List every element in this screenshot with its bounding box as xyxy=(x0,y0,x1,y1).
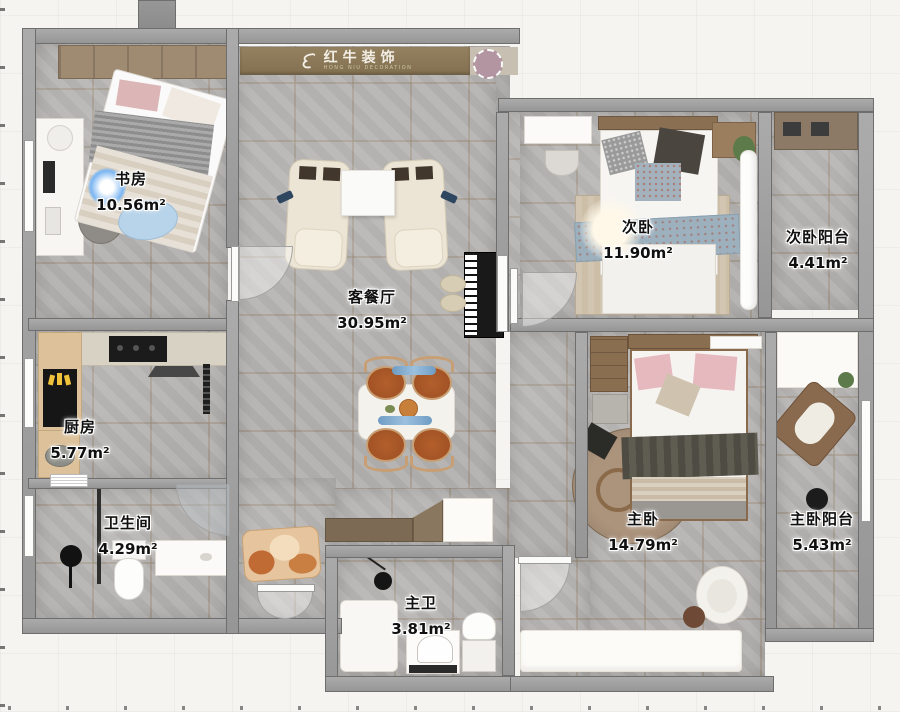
balcony-pot xyxy=(806,488,828,510)
room-label-second-balcony: 次卧阳台 4.41m² xyxy=(786,226,850,272)
pillow-pink xyxy=(693,353,738,391)
wall-bottom-left-outer xyxy=(22,618,238,634)
wall-master-bottom-outer xyxy=(510,676,774,692)
room-name-living-dining: 客餐厅 xyxy=(337,286,407,307)
room-name-master-bath: 主卫 xyxy=(391,592,450,613)
hall-cabinet-white xyxy=(443,498,493,542)
room-name-second-bedroom: 次卧 xyxy=(603,216,673,237)
second-bedroom-desk xyxy=(524,116,592,144)
radiator xyxy=(203,364,210,414)
hongniu-logo-icon xyxy=(298,51,318,71)
entry-door-leaf xyxy=(257,584,315,592)
window-living-hall xyxy=(497,255,508,332)
wall-master-left xyxy=(575,332,588,558)
recliner-cushion xyxy=(299,166,317,180)
brand-name: 红牛装饰 xyxy=(324,52,413,65)
curtain xyxy=(740,150,757,310)
plant-stand xyxy=(60,545,82,567)
master-dresser xyxy=(592,394,628,424)
chair-glass-back xyxy=(378,416,432,425)
faucet xyxy=(200,553,212,561)
floor-corridor xyxy=(510,332,575,558)
master-bed xyxy=(630,349,748,521)
headboard-box xyxy=(710,336,762,349)
burner xyxy=(117,345,123,351)
second-bedroom-chair xyxy=(545,150,579,176)
room-label-master-balcony: 主卧阳台 5.43m² xyxy=(790,508,854,554)
sink-basin xyxy=(417,635,453,663)
master-curtain xyxy=(520,630,742,672)
bed-pillow-pink xyxy=(116,79,162,111)
chair-rattan-back xyxy=(410,456,454,472)
vanity-shelf xyxy=(409,665,457,673)
room-area-master-balcony: 5.43m² xyxy=(790,536,854,554)
master-shower xyxy=(340,600,398,672)
recliner-cushion xyxy=(323,167,341,181)
pouf xyxy=(440,275,466,293)
study-desk xyxy=(36,118,84,256)
floorplan-page: 红牛装饰 HONG NIU DECORATION xyxy=(0,0,900,712)
cabinet-basin xyxy=(811,122,829,136)
cooktop xyxy=(109,336,167,362)
chair-rattan-back xyxy=(364,456,408,472)
piano-keys xyxy=(465,255,477,335)
flame-icon xyxy=(48,375,55,386)
brand-text-block: 红牛装饰 HONG NIU DECORATION xyxy=(324,52,413,71)
flame-icon xyxy=(57,373,62,385)
room-area-master-bath: 3.81m² xyxy=(391,620,450,638)
master-toilet-bowl xyxy=(462,612,496,640)
desk-keyboard xyxy=(45,207,61,235)
bottom-dimension-ticks xyxy=(8,706,898,710)
second-bedroom-door-leaf xyxy=(510,268,518,324)
room-label-second-bedroom: 次卧 11.90m² xyxy=(603,216,673,262)
wall-study-kitchen xyxy=(28,318,230,331)
room-area-living-dining: 30.95m² xyxy=(337,314,407,332)
room-area-second-bedroom: 11.90m² xyxy=(603,244,673,262)
room-area-study: 10.56m² xyxy=(96,196,166,214)
dining-greens xyxy=(385,405,395,413)
window-kitchen xyxy=(24,358,34,428)
burner xyxy=(133,345,139,351)
window-master-balcony xyxy=(861,400,871,522)
wall-top-outer xyxy=(22,28,520,44)
room-label-master-bedroom: 主卧 14.79m² xyxy=(608,508,678,554)
balcony-plant xyxy=(838,372,854,388)
master-bedroom-door-leaf xyxy=(518,556,572,564)
wall-right-outer xyxy=(858,112,874,642)
blanket-olive xyxy=(621,433,758,480)
master-wardrobe xyxy=(590,336,628,392)
kitchen-counter-top xyxy=(80,332,228,366)
wall-master-balcony-bottom xyxy=(765,628,874,642)
lounge-cushion xyxy=(789,397,840,450)
recliner-footrest xyxy=(394,228,444,268)
range-hood xyxy=(148,366,200,377)
plant-stand-pole xyxy=(69,566,72,588)
burner xyxy=(149,345,155,351)
wall-mid-horizontal xyxy=(510,318,874,332)
bathroom-vanity xyxy=(155,540,228,576)
second-bed-headboard xyxy=(598,116,718,130)
armchair-seat xyxy=(707,579,737,613)
wall-master-bath-right xyxy=(502,545,515,676)
pouf xyxy=(440,294,466,312)
room-label-living-dining: 客餐厅 30.95m² xyxy=(337,286,407,332)
hanging-planter xyxy=(374,572,392,590)
room-name-master-bedroom: 主卧 xyxy=(608,508,678,529)
recliner-cushion xyxy=(415,166,433,180)
room-area-kitchen: 5.77m² xyxy=(50,444,109,462)
recliner-footrest xyxy=(293,228,343,268)
window-study xyxy=(24,140,34,232)
room-label-master-bath: 主卫 3.81m² xyxy=(391,592,450,638)
wall-master-bath-bottom xyxy=(325,676,515,692)
window-bathroom xyxy=(24,495,34,557)
room-area-second-balcony: 4.41m² xyxy=(786,254,850,272)
shoe-cabinet xyxy=(325,518,413,542)
toilet xyxy=(114,558,144,600)
master-toilet-base xyxy=(462,640,496,672)
brand-banner: 红牛装饰 HONG NIU DECORATION xyxy=(240,47,470,75)
room-label-bathroom: 卫生间 4.29m² xyxy=(98,512,157,558)
room-name-master-balcony: 主卧阳台 xyxy=(790,508,854,529)
coffee-table xyxy=(341,170,395,216)
study-door-leaf xyxy=(231,246,239,302)
wall-master-balcony-div xyxy=(765,332,777,642)
pillow-speckled xyxy=(635,163,681,201)
entry-doormat xyxy=(241,525,321,582)
blanket-beige xyxy=(632,477,746,503)
chair-glass-back xyxy=(392,366,436,375)
cabinet-basin xyxy=(783,122,801,136)
desk-monitor xyxy=(43,161,55,193)
wall-study-living-upper xyxy=(226,28,239,248)
room-name-bathroom: 卫生间 xyxy=(98,512,157,533)
desk-speaker xyxy=(47,125,73,151)
ceiling-light-symbol xyxy=(473,49,503,79)
pouf-brown xyxy=(683,606,705,628)
flame-icon xyxy=(64,375,71,386)
room-name-kitchen: 厨房 xyxy=(50,416,109,437)
brand-subtitle: HONG NIU DECORATION xyxy=(324,65,413,71)
room-name-study: 书房 xyxy=(96,168,166,189)
room-label-kitchen: 厨房 5.77m² xyxy=(50,416,109,462)
wall-bedrooms-top xyxy=(498,98,874,112)
wall-master-bath-top xyxy=(325,545,515,558)
wall-study-living-lower xyxy=(226,300,239,634)
towel-radiator xyxy=(50,474,88,487)
room-area-master-bedroom: 14.79m² xyxy=(608,536,678,554)
room-name-second-balcony: 次卧阳台 xyxy=(786,226,850,247)
study-wardrobe xyxy=(58,45,228,79)
balcony-cabinet xyxy=(774,112,858,150)
left-dimension-ticks xyxy=(0,8,5,708)
wall-second-balcony-div xyxy=(758,112,772,318)
room-label-study: 书房 10.56m² xyxy=(96,168,166,214)
room-area-bathroom: 4.29m² xyxy=(98,540,157,558)
wall-master-bath-left xyxy=(325,545,338,690)
